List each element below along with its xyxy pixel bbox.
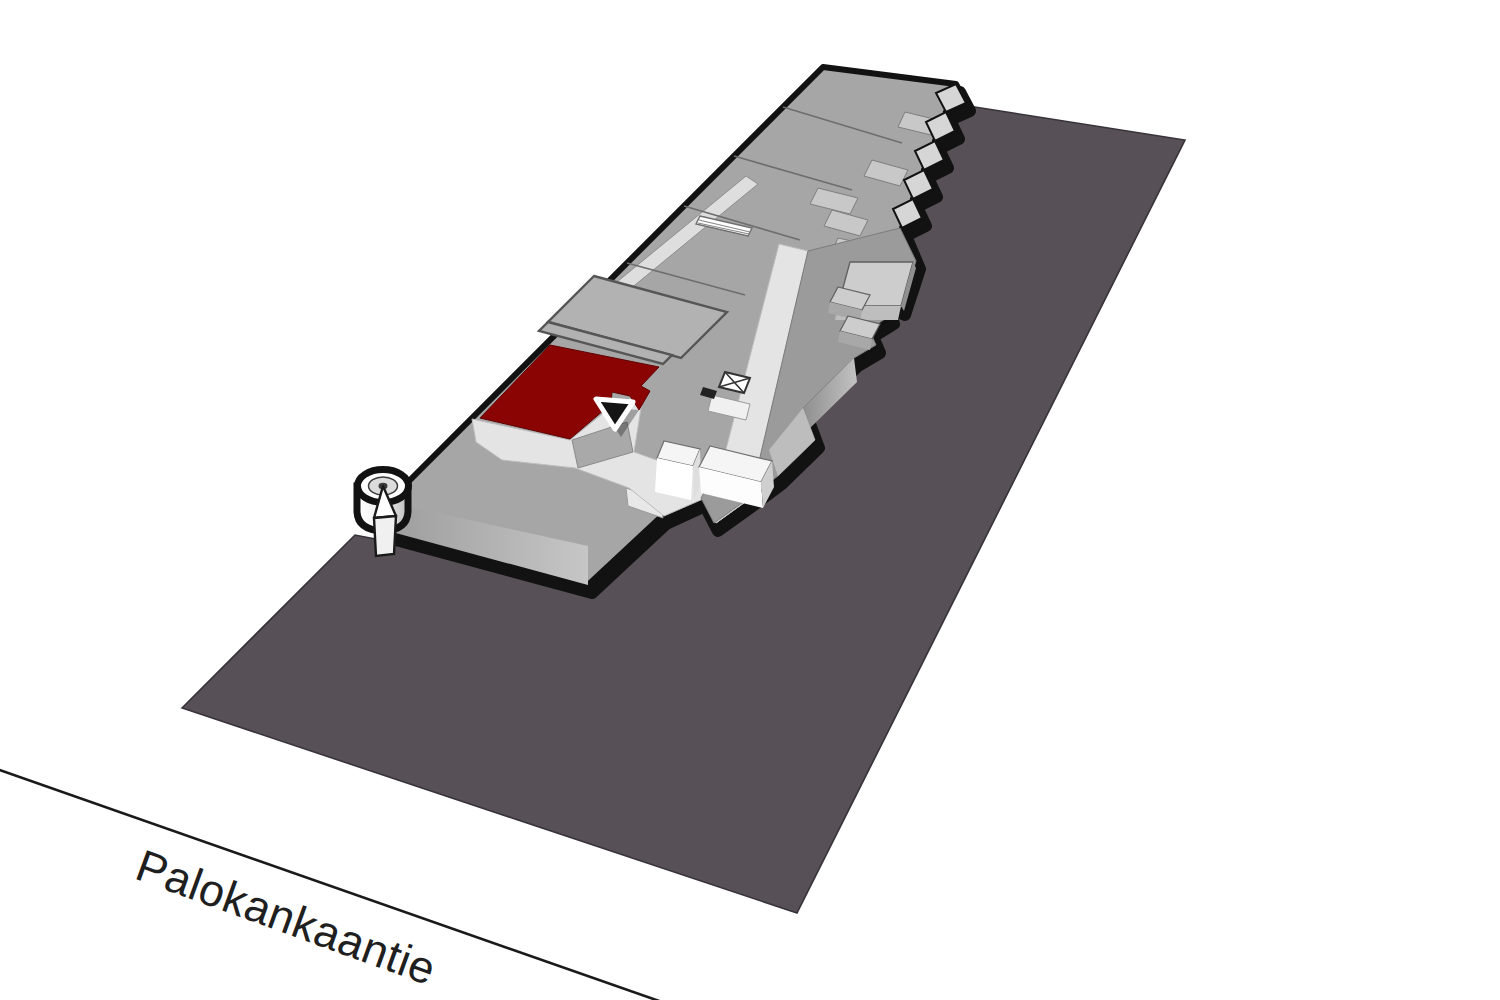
tower-wedge-base (374, 516, 396, 556)
street-label: Palokankaantie (130, 839, 443, 995)
site-map: Palokankaantie (0, 0, 1500, 1000)
map-canvas: Palokankaantie (0, 0, 1500, 1000)
